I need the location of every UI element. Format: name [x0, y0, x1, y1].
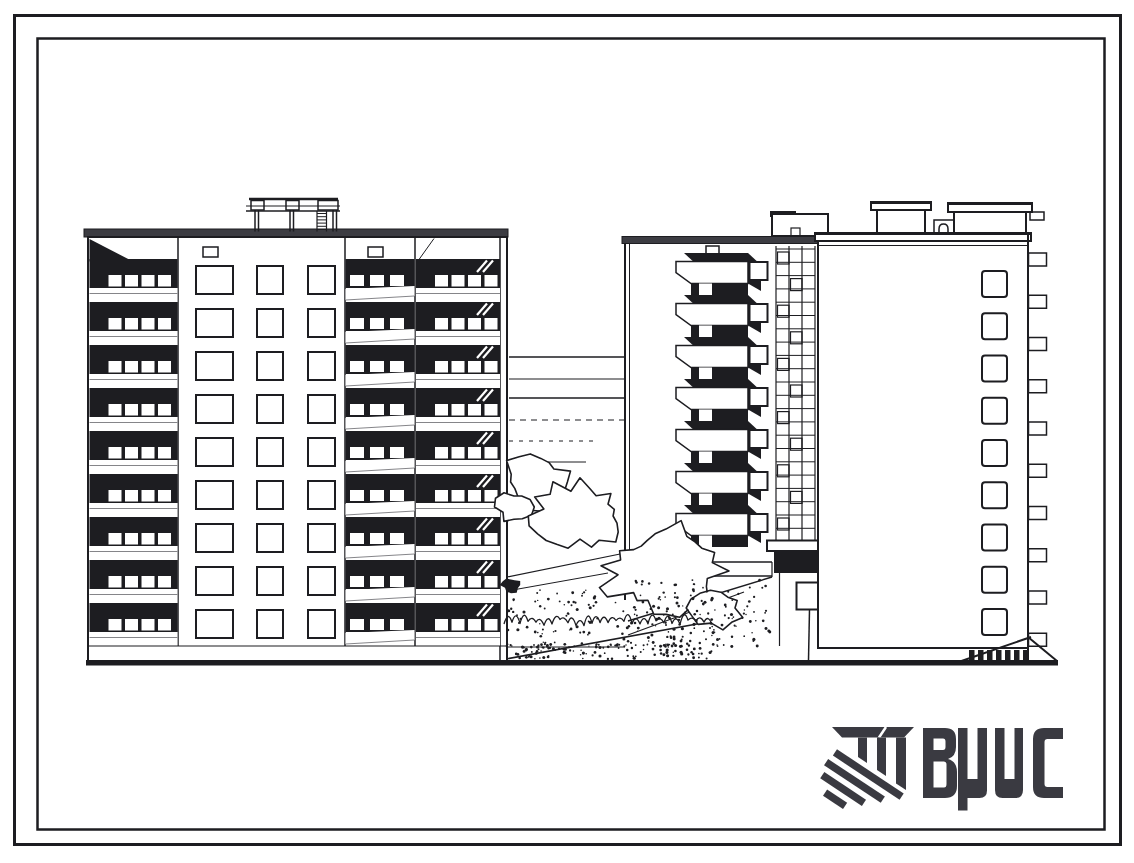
- terrace-diagonal: [507, 573, 608, 591]
- window: [308, 610, 335, 638]
- balcony-slab: [90, 417, 178, 431]
- stipple-dot: [511, 645, 513, 647]
- entrance-post: [809, 610, 810, 661]
- railing-pane: [370, 404, 384, 415]
- stipple-dot: [567, 601, 570, 604]
- window: [308, 438, 335, 466]
- stipple-dot: [701, 653, 703, 655]
- window: [982, 482, 1007, 508]
- railing-pane: [435, 576, 448, 588]
- stipple-dot: [623, 645, 625, 647]
- stipple-dot: [711, 635, 712, 636]
- stipple-dot: [610, 643, 612, 645]
- railing-pane: [158, 619, 171, 631]
- window: [750, 472, 768, 490]
- stipple-dot: [662, 653, 665, 656]
- stipple-dot: [585, 653, 587, 655]
- stipple-dot: [705, 638, 707, 640]
- stipple-dot: [618, 644, 620, 646]
- stipple-dot: [582, 593, 584, 595]
- stipple-dot: [583, 591, 585, 593]
- stipple-dot: [660, 652, 662, 654]
- stipple-dot: [576, 625, 579, 628]
- stipple-dot: [660, 599, 662, 601]
- railing-pane: [468, 619, 481, 631]
- stipple-dot: [588, 632, 591, 635]
- balcony-door: [699, 368, 712, 380]
- stipple-dot: [691, 579, 693, 581]
- stipple-dot: [647, 620, 649, 622]
- stipple-dot: [568, 613, 570, 615]
- railing-pane: [370, 619, 384, 630]
- stipple-dot: [660, 582, 662, 584]
- railing-pane: [370, 490, 384, 501]
- stipple-dot: [626, 626, 629, 629]
- window: [257, 395, 283, 423]
- stipple-dot: [711, 626, 713, 628]
- stipple-dot: [647, 644, 649, 646]
- railing-pane: [158, 576, 171, 588]
- balcony-slab: [90, 632, 178, 646]
- balcony-slab: [416, 417, 500, 431]
- stipple-dot: [664, 645, 667, 648]
- railing-pane: [142, 361, 155, 373]
- side-window-tabs: [1029, 253, 1047, 646]
- railing-pane: [370, 447, 384, 458]
- stipple-dot: [571, 591, 574, 594]
- stipple-dot: [676, 596, 679, 599]
- railing-pane: [109, 576, 122, 588]
- stipple-dot: [558, 648, 560, 650]
- stipple-dot: [710, 599, 713, 602]
- stipple-dot: [526, 626, 529, 629]
- railing-pane: [350, 404, 364, 415]
- balcony-slab: [90, 374, 178, 388]
- stipple-dot: [693, 627, 695, 629]
- stipple-dot: [538, 648, 540, 650]
- stipple-dot: [518, 657, 520, 659]
- stipple-dot: [626, 649, 629, 652]
- stipple-dot: [666, 607, 669, 610]
- railing-pane: [452, 490, 465, 502]
- stipple-dot: [724, 614, 726, 616]
- stipple-dot: [564, 651, 566, 653]
- window: [257, 610, 283, 638]
- balcony-slab: [90, 331, 178, 345]
- railing-pane: [109, 318, 122, 330]
- stipple-dot: [666, 636, 668, 638]
- stipple-dot: [592, 605, 594, 607]
- stipple-dot: [721, 624, 724, 627]
- balcony-slab: [416, 374, 500, 388]
- balcony-slab: [676, 388, 748, 410]
- mark-tooth: [877, 738, 886, 777]
- stipple-dot: [536, 650, 539, 653]
- stipple-dot: [652, 648, 655, 651]
- stipple-dot: [712, 631, 715, 634]
- stipple-dot: [682, 636, 684, 638]
- railing-pane: [350, 275, 364, 286]
- entrance-canopy: [767, 541, 822, 552]
- railing-pane: [390, 447, 404, 458]
- stipple-dot: [540, 643, 543, 646]
- stipple-dot: [525, 656, 528, 659]
- railing-pane: [109, 275, 122, 287]
- window: [257, 309, 283, 337]
- railing-pane: [435, 619, 448, 631]
- stipple-dot: [673, 636, 676, 639]
- window: [257, 567, 283, 595]
- stipple-dot: [681, 627, 684, 630]
- stipple-dot: [542, 628, 544, 630]
- railing-pane: [370, 318, 384, 329]
- stipple-dot: [635, 580, 637, 582]
- window: [982, 440, 1007, 466]
- stipple-dot: [634, 614, 636, 616]
- stipple-dot: [678, 623, 680, 625]
- railing-pane: [452, 619, 465, 631]
- stipple-dot: [525, 648, 528, 651]
- stipple-dot: [534, 658, 536, 660]
- stipple-dot: [730, 645, 733, 648]
- stipple-dot: [730, 613, 733, 616]
- stipple-dot: [672, 628, 675, 631]
- stipple-dot: [734, 625, 736, 627]
- stipple-dot: [753, 596, 755, 598]
- balcony-slab: [416, 288, 500, 302]
- railing-pane: [125, 619, 138, 631]
- stipple-dot: [665, 622, 667, 624]
- side-window-tab: [1029, 549, 1047, 562]
- stipple-dot: [657, 617, 660, 620]
- stipple-dot: [762, 619, 765, 622]
- stipple-dot: [659, 649, 662, 652]
- balcony-slab: [676, 262, 748, 284]
- stipple-dot: [682, 605, 683, 606]
- railing-pane: [435, 447, 448, 459]
- stipple-dot: [531, 651, 533, 653]
- penthouse: [954, 212, 1026, 233]
- side-window-tab: [1029, 338, 1047, 351]
- window: [750, 346, 768, 364]
- stipple-dot: [745, 614, 747, 616]
- stipple-dot: [556, 593, 558, 595]
- railing-pane: [390, 275, 404, 286]
- railing-pane: [158, 361, 171, 373]
- railing-pane: [109, 447, 122, 459]
- logo-mark: [810, 727, 914, 832]
- stipple-dot: [756, 644, 759, 647]
- stipple-dot: [657, 606, 660, 609]
- balcony-slab: [676, 430, 748, 452]
- railing-pane: [485, 533, 498, 545]
- drawing-sheet: ВЦИС: [0, 0, 1134, 863]
- balcony-door: [699, 494, 712, 506]
- railing-pane: [350, 447, 364, 458]
- side-window-tab: [1029, 591, 1047, 604]
- stipple-dot: [767, 629, 770, 632]
- stipple-dot: [547, 598, 550, 601]
- railing-pane: [370, 533, 384, 544]
- window: [750, 514, 768, 532]
- railing-pane: [468, 447, 481, 459]
- stipple-dot: [588, 604, 590, 606]
- railing-pane: [109, 361, 122, 373]
- railing-pane: [158, 533, 171, 545]
- front-building: [815, 202, 1057, 662]
- railing-pane: [435, 275, 448, 287]
- stipple-dot: [582, 652, 585, 655]
- window: [196, 567, 233, 595]
- balcony-slab: [90, 460, 178, 474]
- stipple-dot: [655, 625, 656, 626]
- side-window-tab: [1029, 253, 1047, 266]
- window: [982, 398, 1007, 424]
- stipple-dot: [507, 643, 509, 645]
- logo-letter-V: [923, 728, 957, 798]
- railing-pane: [468, 490, 481, 502]
- stipple-dot: [510, 608, 512, 610]
- stipple-dot: [634, 609, 636, 611]
- stipple-dot: [698, 653, 700, 655]
- stipple-dot: [710, 618, 713, 621]
- window: [257, 266, 283, 294]
- stipple-dot: [544, 643, 546, 645]
- stipple-dot: [701, 600, 703, 602]
- stipple-dot: [693, 647, 696, 650]
- stipple-dot: [653, 653, 656, 656]
- window: [308, 395, 335, 423]
- railing-pane: [142, 275, 155, 287]
- stipple-dot: [573, 645, 574, 646]
- stipple-dot: [650, 633, 653, 636]
- middle-balcony-stack: [346, 259, 415, 644]
- stipple-dot: [685, 658, 687, 660]
- stipple-dot: [686, 643, 688, 645]
- stipple-dot: [631, 647, 633, 649]
- stipple-dot: [674, 644, 677, 647]
- stipple-dot: [516, 628, 519, 631]
- stipple-dot: [731, 618, 732, 619]
- stipple-dot: [552, 647, 555, 650]
- stipple-dot: [595, 644, 597, 646]
- stipple-dot: [686, 648, 689, 651]
- stipple-dot: [699, 642, 701, 644]
- stipple-dot: [534, 601, 536, 603]
- left-cornice: [84, 229, 508, 237]
- stipple-dot: [748, 600, 751, 603]
- railing-pane: [158, 318, 171, 330]
- railing-pane: [390, 404, 404, 415]
- balcony-slab: [676, 472, 748, 494]
- stipple-dot: [752, 640, 754, 642]
- balcony-door: [699, 410, 712, 422]
- window: [257, 438, 283, 466]
- stipple-dot: [520, 618, 522, 620]
- stipple-dot: [598, 654, 601, 657]
- stipple-dot: [650, 608, 652, 610]
- pergola-cap: [251, 201, 264, 211]
- stipple-dot: [539, 657, 541, 659]
- stipple-dot: [630, 621, 633, 624]
- railing-pane: [109, 619, 122, 631]
- window: [308, 352, 335, 380]
- stipple-dot: [582, 631, 585, 634]
- stipple-dot: [540, 650, 542, 652]
- logo: [810, 727, 1063, 832]
- window: [750, 388, 768, 406]
- stipple-dot: [692, 653, 695, 656]
- right-balcony-stack: [416, 259, 500, 646]
- stipple-dot: [744, 609, 746, 611]
- stipple-dot: [692, 623, 695, 626]
- stipple-dot: [728, 617, 730, 619]
- stipple-dot: [569, 629, 570, 630]
- stipple-dot: [647, 636, 650, 639]
- railing-pane: [142, 619, 155, 631]
- stipple-dot: [712, 643, 715, 646]
- logo-letter-TS: [958, 728, 987, 811]
- mark-stripes: [810, 748, 904, 832]
- mark-bar: [832, 727, 914, 738]
- window: [308, 524, 335, 552]
- balcony-slab: [416, 589, 500, 603]
- stipple-dot: [648, 582, 650, 584]
- stipple-dot: [672, 614, 674, 616]
- stipple-dot: [633, 657, 635, 659]
- railing-pane: [468, 318, 481, 330]
- stipple-dot: [693, 613, 696, 616]
- stipple-dot: [714, 609, 716, 611]
- stipple-dot: [633, 606, 636, 609]
- balcony-slab: [676, 304, 748, 326]
- stipple-dot: [691, 597, 694, 600]
- stipple-dot: [573, 650, 575, 652]
- railing-pane: [485, 275, 498, 287]
- stipple-dot: [753, 611, 755, 613]
- mark-tooth: [858, 738, 867, 764]
- railing-pane: [125, 404, 138, 416]
- stipple-dot: [746, 605, 748, 607]
- balcony-slab: [676, 346, 748, 368]
- entrance-shadow: [774, 551, 817, 573]
- railing-pane: [485, 404, 498, 416]
- stipple-dot: [755, 620, 757, 622]
- stipple-dot: [549, 643, 552, 646]
- window: [308, 481, 335, 509]
- roof-pergola: [246, 199, 340, 232]
- stipple-dot: [604, 652, 606, 654]
- railing-pane: [142, 490, 155, 502]
- stipple-dot: [733, 616, 735, 618]
- stipple-dot: [749, 620, 752, 623]
- stipple-dot: [594, 651, 597, 654]
- railing-pane: [142, 576, 155, 588]
- stipple-dot: [518, 622, 520, 624]
- stipple-dot: [537, 600, 538, 601]
- stipple-dot: [559, 600, 561, 602]
- pergola-cap: [318, 201, 338, 211]
- railing-pane: [350, 361, 364, 372]
- stipple-dot: [516, 614, 518, 616]
- stipple-dot: [596, 646, 598, 648]
- window: [750, 304, 768, 322]
- stipple-dot: [542, 656, 545, 659]
- railing-pane: [158, 447, 171, 459]
- stipple-dot: [563, 643, 566, 646]
- stipple-dot: [654, 645, 656, 647]
- stipple-dot: [522, 610, 525, 613]
- railing-pane: [125, 533, 138, 545]
- railing-pane: [390, 533, 404, 544]
- stipple-dot: [615, 644, 618, 647]
- stipple-dot: [668, 646, 669, 647]
- railing-pane: [485, 576, 498, 588]
- stipple-dot: [635, 655, 637, 657]
- stipple-dot: [507, 609, 510, 612]
- roof-tab: [1030, 212, 1044, 220]
- window: [196, 352, 233, 380]
- stipple-dot: [671, 645, 674, 648]
- railing-pane: [125, 490, 138, 502]
- stipple-dot: [690, 594, 692, 596]
- balcony-door: [699, 536, 712, 548]
- stipple-dot: [539, 605, 541, 607]
- railing-pane: [435, 404, 448, 416]
- stipple-dot: [587, 634, 589, 636]
- stipple-dot: [651, 623, 653, 625]
- stipple-dot: [668, 631, 670, 633]
- railing-pane: [452, 318, 465, 330]
- stipple-dot: [637, 627, 640, 630]
- stipple-dot: [634, 622, 637, 625]
- stipple-dot: [506, 645, 508, 647]
- window-grid: [196, 266, 335, 638]
- stipple-dot: [548, 655, 549, 656]
- stipple-dot: [554, 630, 556, 632]
- stipple-dot: [731, 599, 733, 601]
- balcony-slab: [676, 514, 748, 536]
- stipple-dot: [618, 647, 620, 649]
- stipple-dot: [674, 592, 676, 594]
- window: [982, 313, 1007, 339]
- pergola-cap: [286, 201, 299, 211]
- stipple-dot: [709, 627, 711, 629]
- logo-text: [923, 728, 1063, 811]
- stipple-dot: [574, 602, 576, 604]
- balcony-slab: [90, 288, 178, 302]
- stipple-dot: [699, 614, 701, 616]
- stipple-dot: [743, 635, 745, 637]
- railing-pane: [485, 447, 498, 459]
- stipple-dot: [641, 583, 643, 585]
- stipple-dot: [758, 579, 761, 582]
- stipple-dot: [640, 595, 642, 597]
- side-window-tab: [1029, 464, 1047, 477]
- railing-pane: [452, 576, 465, 588]
- stipple-dot: [580, 649, 582, 651]
- balcony-slab: [416, 331, 500, 345]
- stipple-dot: [537, 644, 539, 646]
- stipple-dot: [544, 608, 546, 610]
- window: [308, 567, 335, 595]
- roof-step: [934, 220, 956, 233]
- stipple-dot: [692, 656, 695, 659]
- stipple-dot: [570, 604, 572, 606]
- stipple-dot: [677, 605, 680, 608]
- window: [257, 481, 283, 509]
- stipple-dot: [673, 652, 675, 654]
